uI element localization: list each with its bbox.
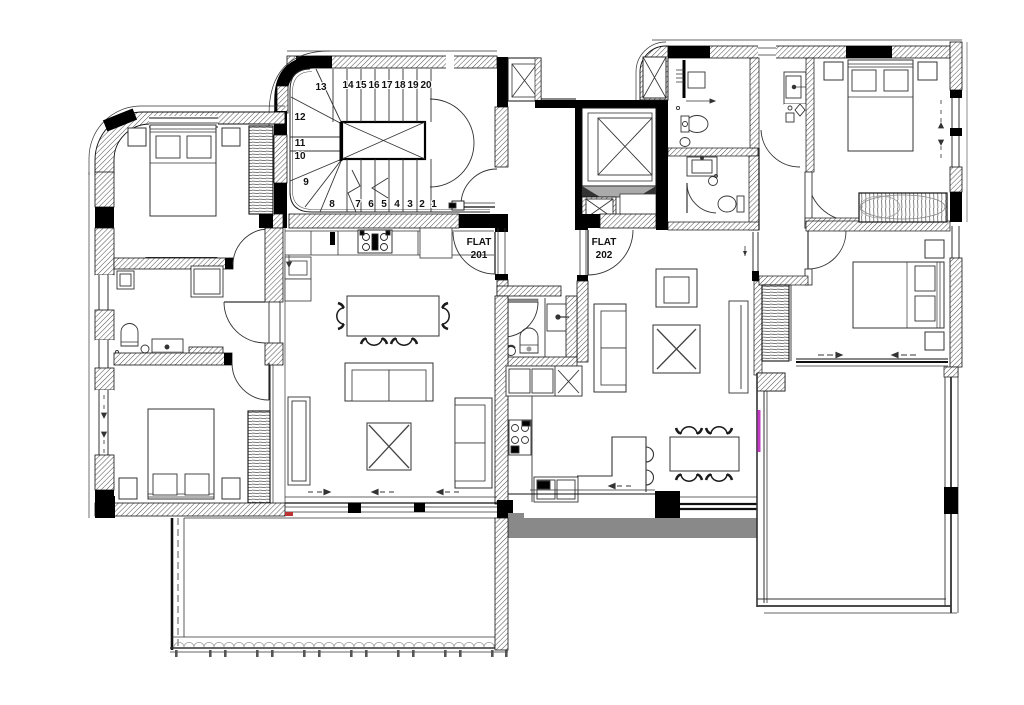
- svg-text:5: 5: [381, 199, 387, 210]
- svg-text:FLAT: FLAT: [592, 237, 617, 248]
- svg-text:18: 18: [394, 80, 406, 91]
- svg-text:20: 20: [420, 80, 432, 91]
- svg-text:3: 3: [407, 199, 413, 210]
- svg-text:17: 17: [381, 80, 393, 91]
- svg-text:9: 9: [303, 177, 309, 188]
- svg-text:2: 2: [419, 199, 425, 210]
- svg-text:7: 7: [355, 199, 361, 210]
- svg-text:8: 8: [329, 199, 335, 210]
- svg-text:4: 4: [394, 199, 400, 210]
- svg-text:15: 15: [355, 80, 367, 91]
- svg-text:10: 10: [294, 151, 306, 162]
- svg-text:6: 6: [368, 199, 374, 210]
- svg-text:19: 19: [407, 80, 419, 91]
- svg-text:202: 202: [596, 250, 613, 261]
- svg-text:16: 16: [368, 80, 380, 91]
- svg-text:201: 201: [471, 250, 488, 261]
- svg-text:11: 11: [295, 138, 306, 149]
- svg-text:FLAT: FLAT: [467, 237, 492, 248]
- svg-text:1: 1: [431, 199, 437, 210]
- svg-text:14: 14: [342, 80, 354, 91]
- svg-text:12: 12: [294, 112, 306, 123]
- svg-text:13: 13: [315, 82, 327, 93]
